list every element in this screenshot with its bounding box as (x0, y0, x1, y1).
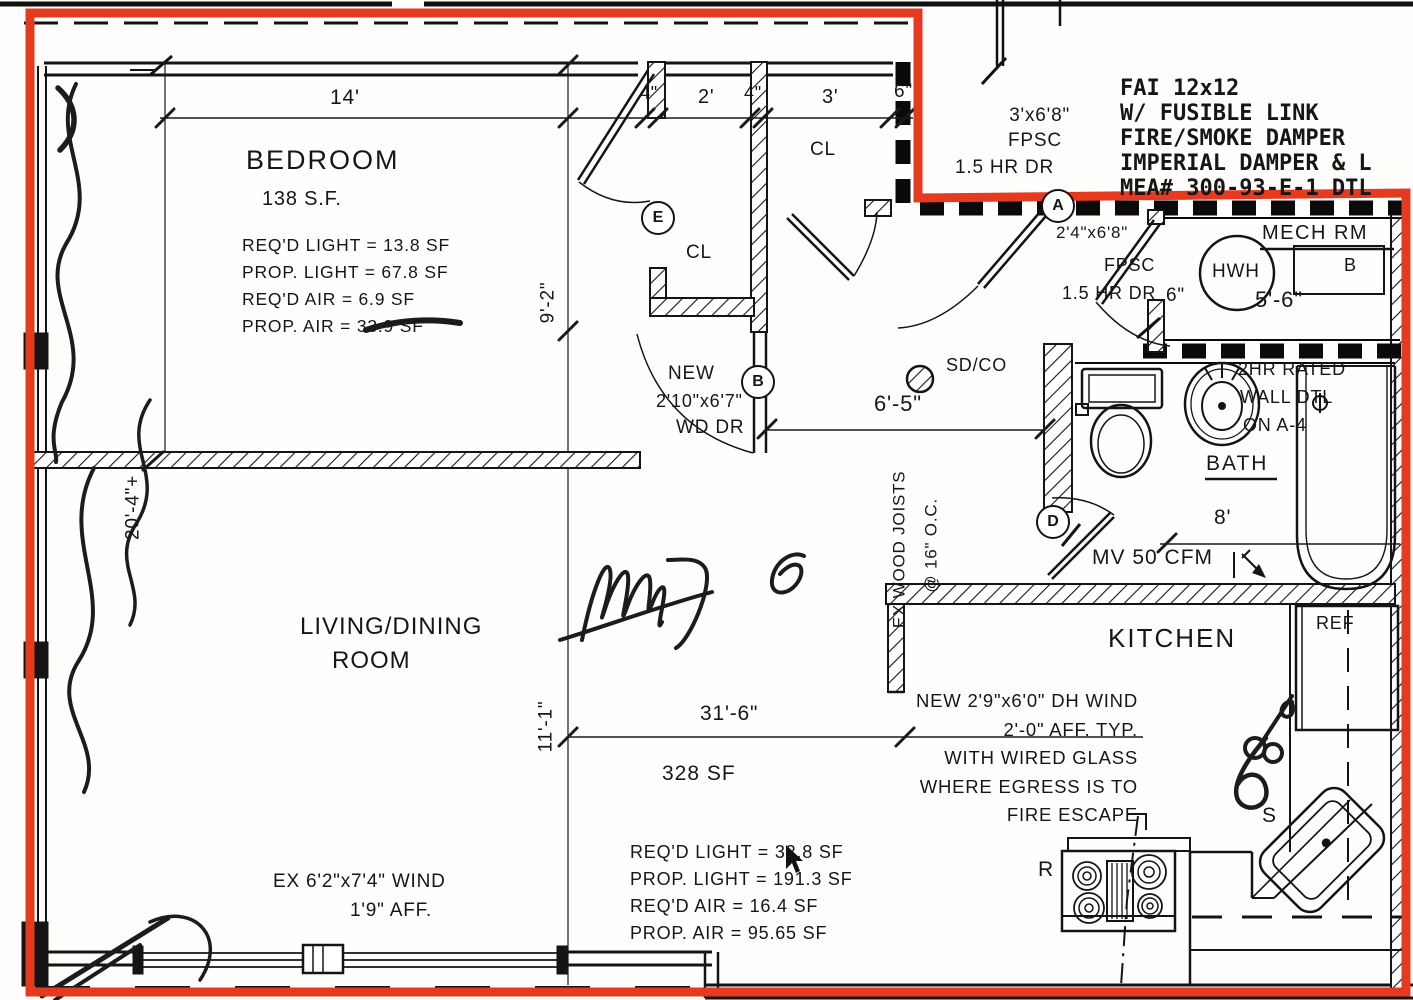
bedroom-door-type: WD DR (676, 418, 744, 439)
door-tag-d: D (1036, 505, 1070, 539)
mech-door-type: FPSC (1104, 256, 1155, 276)
bedroom-door-size: 2'10"x6'7" (656, 392, 743, 412)
dim-20-4: 20'-4"+ (124, 455, 145, 559)
dim-6in-b: 6" (1166, 286, 1185, 307)
dim-31-6: 31'-6" (700, 702, 758, 725)
dim-4in-b: 4" (744, 84, 762, 104)
dim-14ft: 14' (330, 86, 360, 109)
entry-door-rating: 1.5 HR DR (955, 158, 1054, 179)
dim-8ft: 8' (1214, 506, 1231, 529)
bedroom-area: 138 S.F. (262, 188, 342, 210)
doors (578, 70, 1170, 579)
closet-mid-label: CL (686, 243, 712, 264)
living-room-label-1: LIVING/DINING (300, 614, 482, 640)
living-room-label-2: ROOM (332, 648, 411, 674)
closet-top-label: CL (810, 140, 836, 161)
dim-9-2: 9'-2" (539, 262, 560, 342)
kitchen-window-note: NEW 2'9"x6'0" DH WIND 2'-0" AFF. TYP. WI… (855, 687, 1138, 830)
kitchen-label: KITCHEN (1108, 624, 1236, 653)
bedroom-label: BEDROOM (246, 146, 400, 176)
range-label: R (1038, 858, 1054, 881)
fridge-label: REF (1316, 614, 1354, 634)
bath-label: BATH (1206, 452, 1268, 475)
living-window-note-2: 1'9" AFF. (350, 901, 432, 922)
dim-4in-a: 4" (640, 84, 658, 104)
mech-vent-label: MV 50 CFM (1092, 546, 1213, 569)
sink-label: S (1262, 804, 1277, 827)
fai-damper-note: FAI 12x12 W/ FUSIBLE LINK FIRE/SMOKE DAM… (1120, 76, 1372, 201)
bedroom-door-new: NEW (668, 364, 715, 385)
door-tag-e: E (641, 201, 675, 235)
rated-wall-note-1: 2HR RATED (1238, 360, 1346, 380)
living-window-note-1: EX 6'2"x7'4" WIND (273, 872, 446, 893)
living-light-air-stats: REQ'D LIGHT = 32.8 SF PROP. LIGHT = 191.… (630, 839, 853, 947)
dim-3ft: 3' (822, 86, 839, 108)
door-tag-b: B (741, 365, 775, 399)
smoke-detector-label: SD/CO (946, 356, 1007, 376)
dim-2ft: 2' (698, 86, 715, 108)
water-heater-label: HWH (1212, 262, 1260, 283)
dim-6-5: 6'-5" (874, 392, 922, 416)
mech-door-size: 2'4"x6'8" (1056, 224, 1128, 243)
mech-door-rating: 1.5 HR DR (1062, 284, 1156, 304)
dim-6in-a: 6" (894, 82, 913, 103)
entry-door-type: FPSC (1008, 131, 1062, 152)
dim-5-6: 5'-6" (1255, 288, 1303, 312)
door-tag-a: A (1041, 189, 1075, 223)
floor-plan-page: FAI 12x12 W/ FUSIBLE LINK FIRE/SMOKE DAM… (0, 0, 1413, 1000)
bedroom-light-air-stats: REQ'D LIGHT = 13.8 SF PROP. LIGHT = 67.8… (242, 232, 450, 340)
smoke-detector-symbol (907, 366, 933, 392)
joists-note-2: @ 16" O.C. (923, 465, 942, 625)
rated-wall-note-2: WALL DTL (1240, 388, 1333, 408)
joists-note-1: EX WOOD JOISTS (891, 469, 910, 629)
rated-wall-note-3: ON A-4 (1243, 416, 1307, 436)
living-room-area: 328 SF (662, 762, 736, 785)
mech-room-label: MECH RM (1262, 222, 1368, 244)
dim-11-1: 11'-1" (537, 684, 558, 768)
mech-box-label: B (1344, 256, 1357, 276)
entry-door-size: 3'x6'8" (950, 106, 1070, 127)
